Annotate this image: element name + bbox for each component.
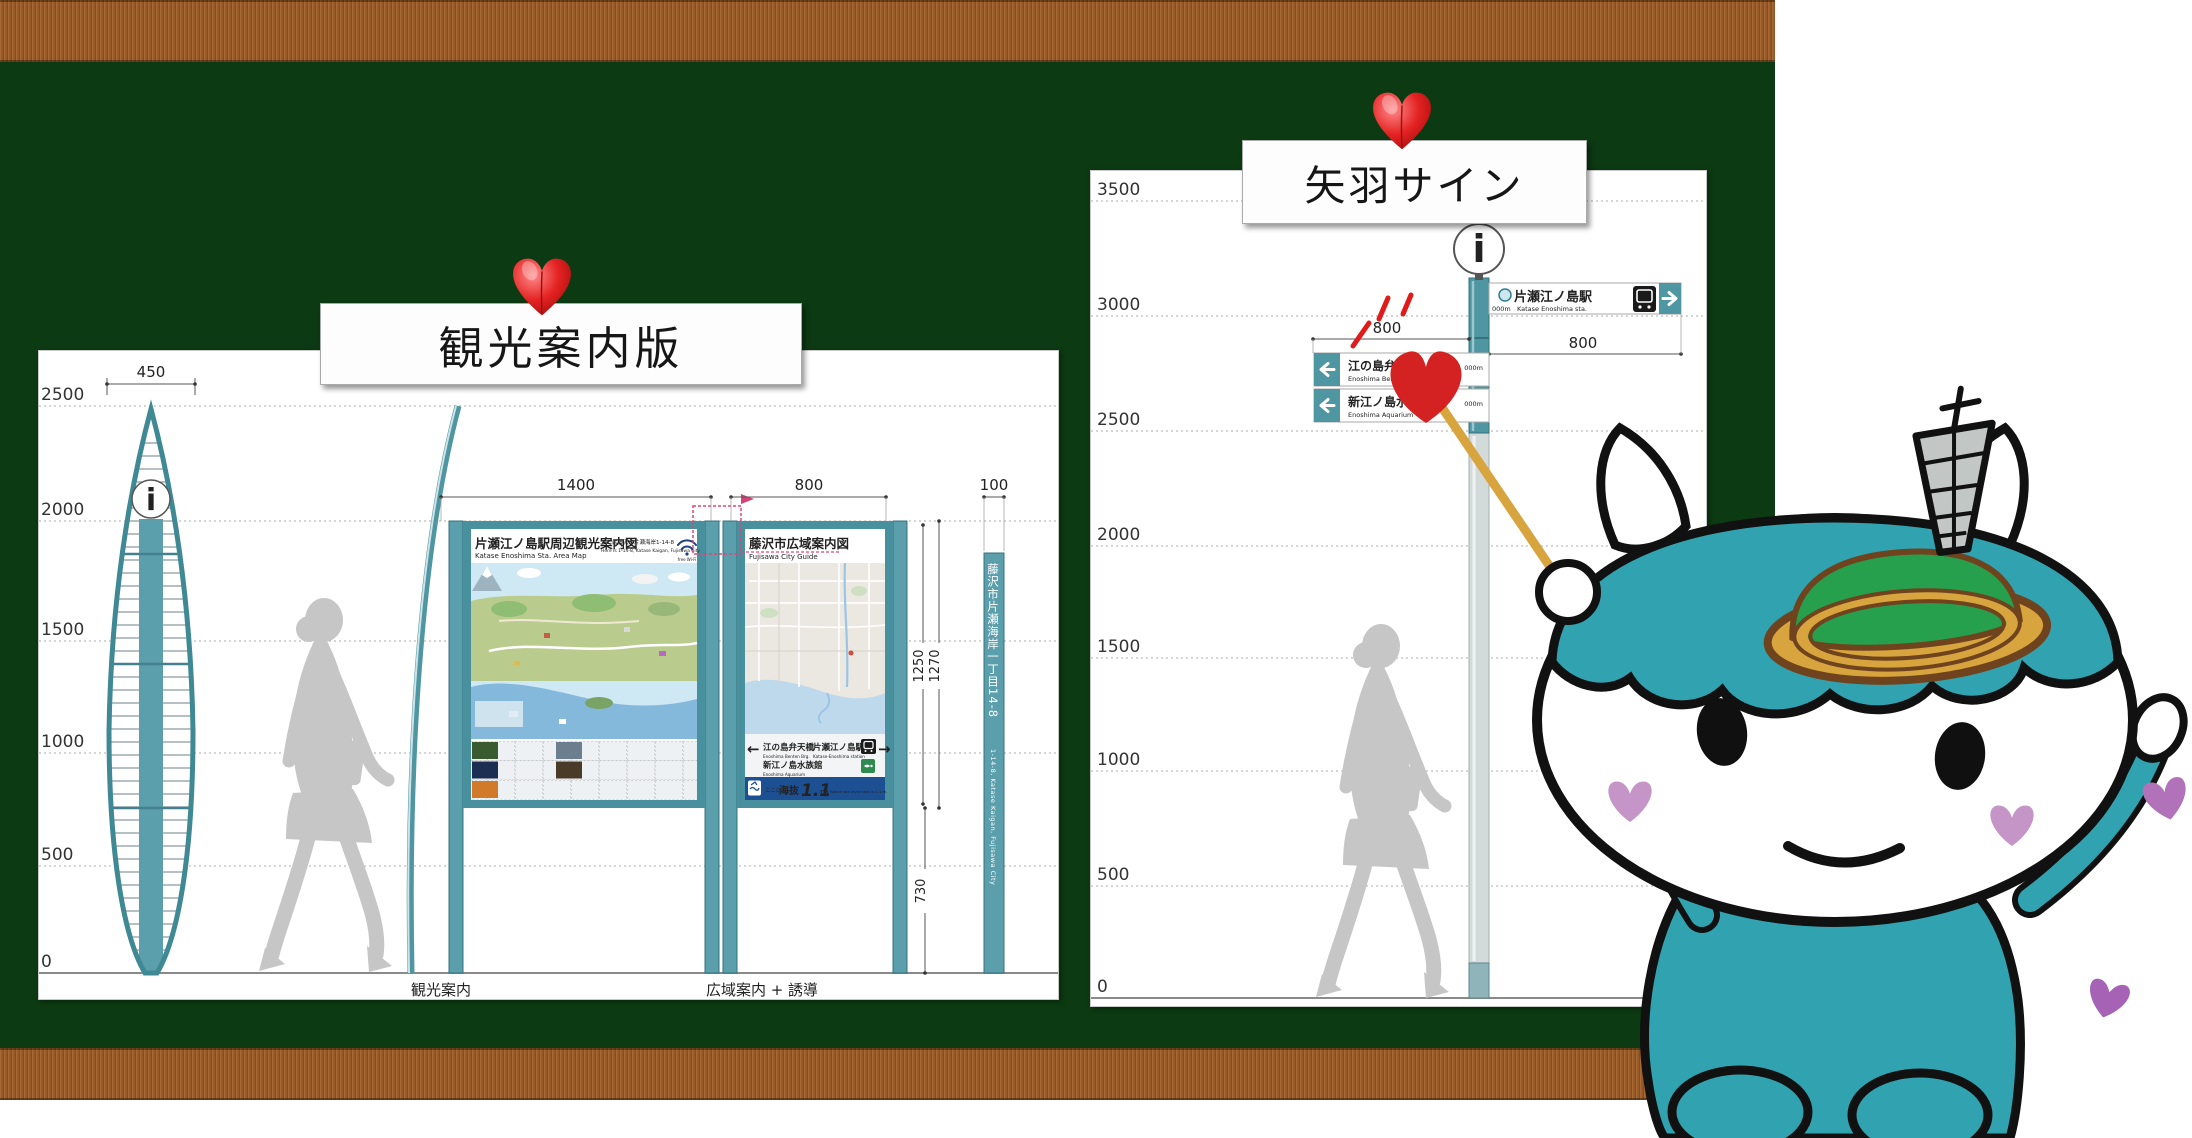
kiosk-center-stripe bbox=[139, 519, 163, 973]
svg-text:1250: 1250 bbox=[912, 649, 927, 682]
dim-450: 450 bbox=[105, 363, 197, 395]
axis-label: 0 bbox=[41, 952, 52, 972]
svg-text:800: 800 bbox=[1373, 319, 1402, 337]
axis-label: 500 bbox=[1097, 865, 1129, 885]
wifi-label: free Wi-Fi bbox=[678, 557, 697, 562]
aquarium-icon bbox=[861, 759, 875, 773]
wood-border-top bbox=[0, 0, 1775, 62]
svg-text:1270: 1270 bbox=[928, 649, 943, 682]
foot-label-wide-area: 広域案内 + 誘導 bbox=[706, 981, 818, 999]
dim-800-left: 800 bbox=[1311, 319, 1471, 353]
svg-text:730: 730 bbox=[914, 879, 929, 904]
svg-text:800: 800 bbox=[795, 476, 824, 494]
dim-100: 100 bbox=[980, 476, 1009, 551]
axis-label: 2500 bbox=[1097, 410, 1140, 430]
elev-en: Above sea level here is 1.1 m. bbox=[830, 789, 887, 794]
sign-aquarium-dist: 000m bbox=[1464, 400, 1483, 408]
left-diagram-panel: 2500 2000 1500 1000 500 0 450 bbox=[38, 350, 1059, 1000]
photo-strip bbox=[471, 741, 697, 800]
pole-address-jp: 藤沢市片瀬海岸一丁目14-8 bbox=[985, 563, 1001, 718]
tourist-map-board: 片瀬江ノ島駅周辺観光案内図 Katase Enoshima Sta. Area … bbox=[467, 525, 701, 804]
mascot-left-hand bbox=[1539, 563, 1597, 621]
photo-thumbnail bbox=[556, 762, 582, 779]
illustrated-map bbox=[471, 563, 697, 739]
photo-thumbnail bbox=[556, 742, 582, 759]
axis-label: 2000 bbox=[41, 500, 84, 520]
right-title: 矢羽サイン bbox=[1305, 152, 1525, 212]
sign-bridge-dist: 000m bbox=[1464, 364, 1483, 372]
dim-730: 730 bbox=[914, 806, 929, 975]
mascot-fujikyun bbox=[1490, 300, 2192, 1138]
board-title-en: Katase Enoshima Sta. Area Map bbox=[475, 552, 587, 560]
axis-label: 2500 bbox=[41, 385, 84, 405]
elevation-bar: ここは 海抜 1.1 m Above sea level here is 1.1… bbox=[745, 777, 887, 801]
dest-aquarium-en: Enoshima Aquarium bbox=[763, 772, 805, 777]
train-icon bbox=[861, 739, 876, 754]
city-guide-board: 藤沢市広域案内図 Fujisawa City Guide ← 江の島弁 bbox=[741, 525, 891, 804]
dim-1400: 1400 bbox=[439, 476, 713, 521]
axis-label: 500 bbox=[41, 845, 73, 865]
right-axis-labels: 3500 3000 2500 2000 1500 1000 500 0 bbox=[1097, 180, 1140, 997]
photo-thumbnail bbox=[472, 781, 498, 798]
svg-text:100: 100 bbox=[980, 476, 1009, 494]
elev-unit: m bbox=[820, 788, 829, 798]
pole-address-en: 1-14-8, Katase Kaigan, Fujisawa City bbox=[989, 749, 997, 885]
dim-800: 800 bbox=[729, 476, 888, 521]
person-silhouette bbox=[259, 598, 392, 972]
mascot-foot bbox=[1852, 1073, 1988, 1138]
axis-label: 1000 bbox=[1097, 750, 1140, 770]
svg-text:1400: 1400 bbox=[557, 476, 595, 494]
subboard-title-en: Fujisawa City Guide bbox=[749, 553, 818, 561]
mascot-horn-left bbox=[1601, 428, 1686, 549]
floating-heart bbox=[2084, 977, 2132, 1022]
photo-thumbnail bbox=[472, 762, 498, 779]
right-arrow: → bbox=[878, 740, 891, 758]
dest-station-en: Katase-Enoshima station bbox=[813, 754, 865, 759]
dim-1270: 1270 bbox=[928, 519, 943, 810]
subboard-title-jp: 藤沢市広域案内図 bbox=[748, 536, 849, 551]
mascot-foot bbox=[1672, 1070, 1808, 1138]
dest-bridge-jp: 江の島弁天橋 bbox=[763, 742, 815, 753]
axis-label: 2000 bbox=[1097, 525, 1140, 545]
heart-icon bbox=[506, 252, 578, 324]
photo-thumbnail bbox=[472, 742, 498, 759]
info-icon-glyph: i bbox=[1472, 227, 1485, 271]
axis-label: 0 bbox=[1097, 977, 1108, 997]
elev-label: 海抜 bbox=[779, 784, 800, 797]
board-addr-jp: ここは藤沢市片瀬海岸1-14-8 bbox=[601, 538, 674, 546]
dim-1250: 1250 bbox=[912, 523, 927, 806]
axis-label: 1000 bbox=[41, 732, 84, 752]
left-arrow: ← bbox=[747, 740, 760, 758]
sign-aquarium-en: Enoshima Aquarium bbox=[1348, 411, 1413, 419]
leaf-kiosk: i bbox=[99, 409, 209, 976]
axis-label: 1500 bbox=[1097, 637, 1140, 657]
board-addr-en: Here is 1-14-8, Katase Kaigan, Fujisawa … bbox=[601, 548, 700, 554]
street-map bbox=[745, 563, 885, 734]
dest-bridge-en: Enoshima Benten Brg. bbox=[763, 754, 810, 759]
svg-text:450: 450 bbox=[137, 363, 166, 381]
slide-canvas: 2500 2000 1500 1000 500 0 450 bbox=[0, 0, 2192, 1138]
direction-panel: ← 江の島弁天橋 Enoshima Benten Brg. 片瀬江ノ島駅 Kat… bbox=[745, 734, 891, 777]
axis-label: 3500 bbox=[1097, 180, 1140, 200]
person-silhouette bbox=[1316, 624, 1449, 998]
left-axis-labels: 2500 2000 1500 1000 500 0 bbox=[41, 385, 84, 972]
info-icon-glyph: i bbox=[146, 483, 156, 518]
axis-label: 3000 bbox=[1097, 295, 1140, 315]
foot-label-tourist: 観光案内 bbox=[411, 981, 471, 999]
axis-label: 1500 bbox=[41, 620, 84, 640]
heart-icon bbox=[1366, 86, 1438, 158]
dest-station-jp: 片瀬江ノ島駅 bbox=[813, 742, 865, 753]
dest-aquarium-jp: 新江ノ島水族館 bbox=[763, 760, 823, 771]
